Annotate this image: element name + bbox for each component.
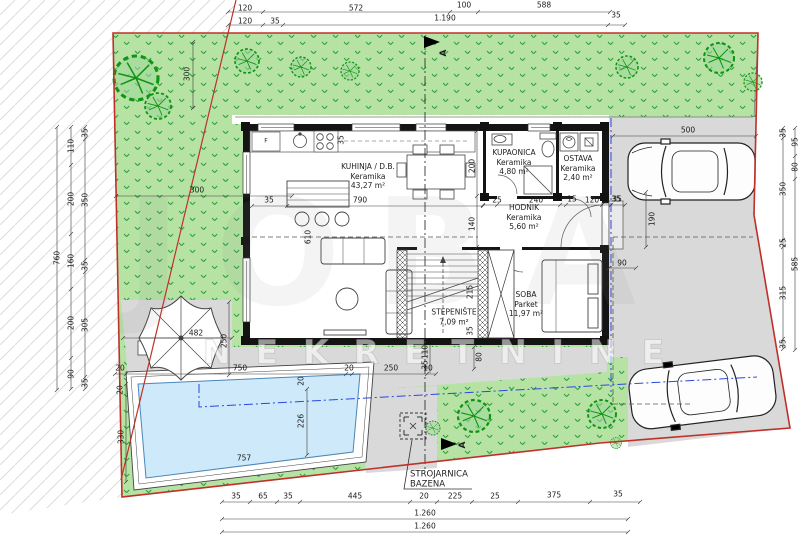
dim-label: 330 xyxy=(117,430,126,444)
dim-label: 1.260 xyxy=(414,509,435,518)
dim-label: 250 xyxy=(384,364,398,373)
dim-label: 35 xyxy=(81,378,90,388)
dim-label: 300 xyxy=(183,67,192,81)
room-label-soba: SOBA Parket 11,97 m² xyxy=(509,290,543,319)
room-label-strojarnica: STROJARNICA BAZENA xyxy=(410,471,468,490)
dim-label: 20 xyxy=(116,385,125,395)
dim-label: 110 xyxy=(421,345,430,359)
dim-label: 572 xyxy=(349,4,363,13)
dim-label: 350 xyxy=(81,193,90,207)
dim-label: 80 xyxy=(475,352,484,362)
room-area: 43,27 m² xyxy=(341,181,395,191)
dim-label: 35 xyxy=(81,128,90,138)
dim-label: 610 xyxy=(304,230,313,244)
dim-label: 120 xyxy=(585,196,599,205)
dim-label: 790 xyxy=(353,196,367,205)
dim-label: 90 xyxy=(617,259,627,268)
room-area: 2,40 m² xyxy=(560,173,595,183)
dim-label: 315 xyxy=(779,286,788,300)
dim-label: 585 xyxy=(791,257,800,271)
dim-label: 160 xyxy=(67,254,76,268)
dim-label: 757 xyxy=(237,454,251,463)
dim-label: 226 xyxy=(297,414,306,428)
dim-label: 215 xyxy=(466,285,475,299)
dim-label: 35 xyxy=(270,17,280,26)
dim-label: 482 xyxy=(189,329,203,338)
watermark-text: NEKRETNINE xyxy=(203,333,689,372)
dim-label: 20 xyxy=(419,492,429,501)
dim-label: 300 xyxy=(190,186,204,195)
dim-label: 200 xyxy=(67,316,76,330)
dim-label: 588 xyxy=(537,1,551,10)
dim-label: 35 xyxy=(779,339,788,349)
room-area: 5,60 m² xyxy=(506,222,541,232)
room-material: Keramika xyxy=(560,163,595,173)
fridge-label: F xyxy=(264,138,267,145)
dim-label: 35 xyxy=(613,490,623,499)
room-name: OSTAVA xyxy=(560,154,595,164)
dim-label: 15 xyxy=(567,195,577,204)
room-area: 11,97 m² xyxy=(509,309,543,319)
dim-label: 200 xyxy=(468,159,477,173)
room-label-kupaonica: KUPAONICA Keramika 4,80 m² xyxy=(492,148,535,177)
dim-label: 1.260 xyxy=(414,522,435,531)
dim-label: 10 xyxy=(423,364,433,373)
room-label-ostava: OSTAVA Keramika 2,40 m² xyxy=(560,154,595,183)
dim-label: 200 xyxy=(67,192,76,206)
dim-label: 25 xyxy=(490,492,500,501)
dim-label: 240 xyxy=(529,196,543,205)
dim-label: 95 xyxy=(791,137,800,147)
watermark-logo: JOBA xyxy=(126,167,670,339)
dim-label: 110 xyxy=(67,139,76,153)
dim-label: 750 xyxy=(233,364,247,373)
dim-label: 90 xyxy=(67,369,76,379)
room-area: 4,80 m² xyxy=(492,167,535,177)
dim-label: 20 xyxy=(297,376,306,386)
dim-label: 35 xyxy=(779,128,788,138)
room-label-stepeniste: STEPENIŠTE 7,09 m² xyxy=(431,308,476,327)
dim-label: 35 xyxy=(611,11,621,20)
room-name: KUHINJA / D.B. xyxy=(341,162,395,172)
dim-label: 375 xyxy=(547,491,561,500)
room-name: STEPENIŠTE xyxy=(431,308,476,318)
room-material: Keramika xyxy=(341,171,395,181)
dim-label: 35 xyxy=(337,135,346,145)
dim-label: 25 xyxy=(779,238,788,248)
dim-label: 80 xyxy=(791,162,800,172)
dim-label: 35 xyxy=(264,196,274,205)
room-material: Keramika xyxy=(506,212,541,222)
dim-label: 305 xyxy=(81,318,90,332)
room-label-kuhinja: KUHINJA / D.B. Keramika 43,27 m² xyxy=(341,162,395,191)
room-name: KUPAONICA xyxy=(492,148,535,158)
gap-strip xyxy=(232,115,609,124)
dim-label: 35 xyxy=(466,326,475,336)
dim-label: 35 xyxy=(231,492,241,501)
dim-label: 120 xyxy=(238,17,252,26)
section-letter-bottom: A xyxy=(458,442,468,449)
dim-label: 65 xyxy=(258,492,268,501)
section-letter-top: A xyxy=(439,50,449,57)
room-material: Parket xyxy=(509,299,543,309)
dim-label: 190 xyxy=(648,212,657,226)
dim-label: 20 xyxy=(344,364,354,373)
site-plan: JOBA NEKRETNINE KUHINJA / D.B. Keramika … xyxy=(0,0,800,557)
dim-label: 225 xyxy=(448,492,462,501)
dim-label: 35 xyxy=(81,261,90,271)
room-name: SOBA xyxy=(509,290,543,300)
dim-label: 445 xyxy=(348,492,362,501)
dim-label: 35 xyxy=(612,195,622,204)
dim-label: 760 xyxy=(53,251,62,265)
dim-label: 100 xyxy=(457,1,471,10)
dim-label: 250 xyxy=(220,334,229,348)
dim-label: 25 xyxy=(492,196,502,205)
dim-label: 1.190 xyxy=(434,14,455,23)
dim-label: 350 xyxy=(779,182,788,196)
dim-label: 500 xyxy=(681,126,695,135)
room-material: Keramika xyxy=(492,157,535,167)
label-line: BAZENA xyxy=(410,480,468,490)
dim-label: 120 xyxy=(238,4,252,13)
dim-label: 20 xyxy=(115,364,125,373)
dim-label: 35 xyxy=(283,492,293,501)
dim-label: 140 xyxy=(468,217,477,231)
room-label-hodnik: HODNIK Keramika 5,60 m² xyxy=(506,203,541,232)
